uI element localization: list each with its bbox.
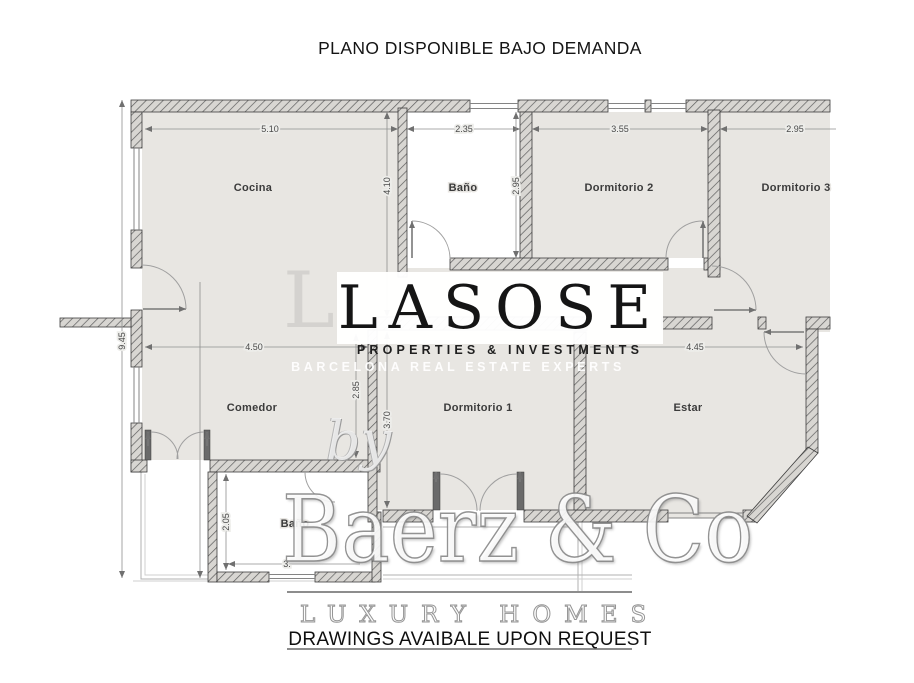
dim-dorm2-width: 3.55: [611, 124, 629, 134]
watermark-by: by: [326, 414, 391, 468]
footer-note: DRAWINGS AVAIBALE UPON REQUEST: [28, 629, 912, 651]
watermark-rule-top: [287, 591, 632, 593]
room-label-dormitorio1: Dormitorio 1: [444, 402, 513, 414]
room-label-dormitorio2: Dormitorio 2: [585, 182, 654, 194]
room-label-estar: Estar: [673, 402, 702, 414]
watermark-subtagline: BARCELONA REAL ESTATE EXPERTS: [285, 360, 631, 374]
watermark-tagline: PROPERTIES & INVESTMENTS: [337, 343, 663, 357]
watermark-brand: LASOSE: [337, 270, 663, 346]
dim-comedor-width: 4.50: [245, 342, 263, 352]
room-label-bano: Baño: [449, 182, 478, 194]
room-label-comedor: Comedor: [227, 402, 278, 414]
dim-comedor-depth: 2.85: [351, 381, 361, 399]
dim-bano2-depth: 2.05: [221, 513, 231, 531]
dim-dorm3-width: 2.95: [786, 124, 804, 134]
watermark-brand-ghost: L: [283, 262, 335, 340]
room-label-cocina: Cocina: [234, 182, 273, 194]
room-label-dormitorio3: Dormitorio 3: [762, 182, 831, 194]
watermark-partner-logo: Baerz & Co: [282, 484, 753, 576]
dim-bano-width: 2.35: [455, 124, 473, 134]
dim-cocina-width: 5.10: [261, 124, 279, 134]
floor-plan-page: PLANO DISPONIBLE BAJO DEMANDA: [0, 0, 914, 683]
watermark-partner-tagline: LUXURY HOMES: [287, 602, 633, 628]
dim-estar-width: 4.45: [686, 342, 704, 352]
dim-total-depth: 9.45: [117, 332, 127, 350]
dim-cocina-depth: 4.10: [382, 177, 392, 195]
dim-bano-depth: 2.95: [511, 177, 521, 195]
